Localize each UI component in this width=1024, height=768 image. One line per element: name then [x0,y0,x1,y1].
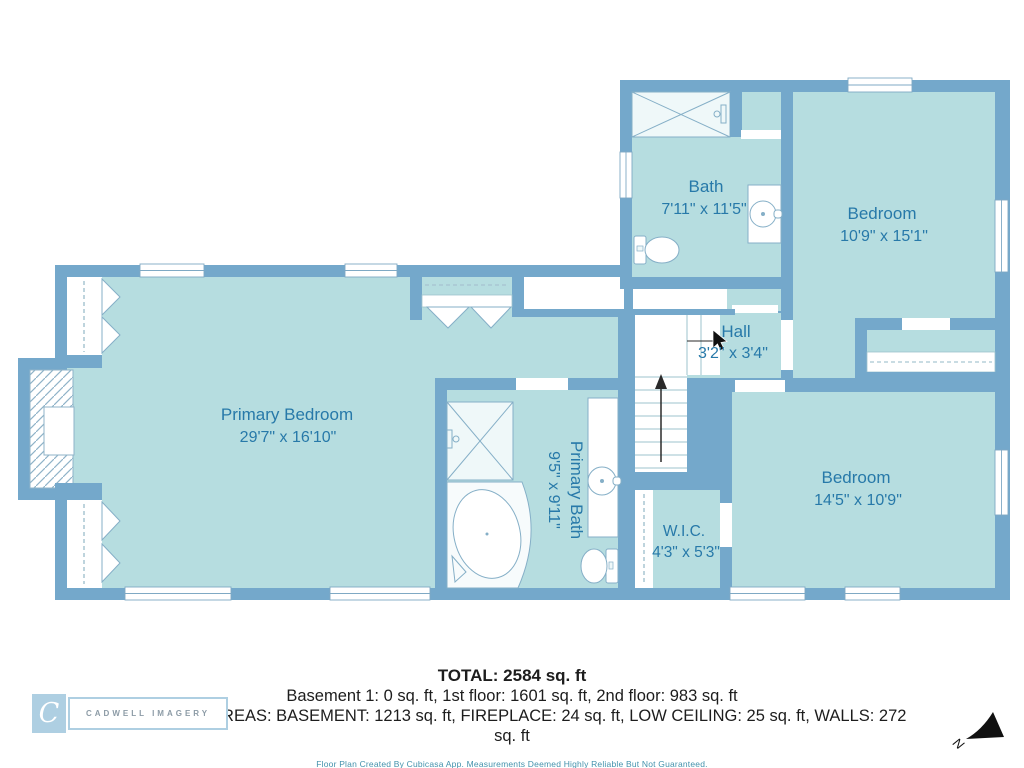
wic-label: W.I.C. [663,523,705,540]
primary-bedroom-dims: 29'7" x 16'10" [240,429,337,446]
total-area-text: TOTAL: 2584 sq. ft [0,666,1024,686]
bedroom-top-dims: 10'9" x 15'1" [840,228,928,245]
toilet [634,236,679,264]
room-bedroom-bottom [732,392,995,588]
bath-dims: 7'11" x 11'5" [661,201,746,218]
floor-plan: Primary Bedroom 29'7" x 16'10" Primary B… [0,0,1024,660]
bedroom-bottom-dims: 14'5" x 10'9" [814,492,902,509]
toilet [581,549,618,583]
bedroom-top-label: Bedroom [848,204,917,223]
bedroom-bottom-label: Bedroom [822,468,891,487]
room-primary-bath [435,378,632,588]
hall-closet [620,277,792,315]
north-label: N [950,735,967,750]
north-arrow-icon [966,712,1004,739]
logo-wordmark-box: CADWELL IMAGERY [68,697,228,730]
logo-name: CADWELL IMAGERY [86,709,210,718]
floor-plan-page: Primary Bedroom 29'7" x 16'10" Primary B… [0,0,1024,768]
shower [447,402,513,480]
sink-vanity [588,398,621,537]
door-opening [735,380,785,392]
primary-bath-dims: 9'5" x 9'11" [545,451,562,529]
door-opening [902,318,950,330]
door-opening [781,320,793,370]
sink-vanity [748,185,782,243]
door-opening [516,378,568,390]
shower [632,92,730,137]
door-opening [732,305,778,313]
excluded-areas-text: EXCLUDED AREAS: BASEMENT: 1213 sq. ft, F… [117,706,907,746]
bathtub [444,482,531,588]
logo-initial: C [39,700,60,727]
disclaimer-text: Floor Plan Created By Cubicasa App. Meas… [0,759,1024,768]
stair-void [512,277,632,317]
logo-monogram-icon: C [32,694,66,733]
hall-dims: 3'2" x 3'4" [698,345,768,362]
cadwell-imagery-logo: C CADWELL IMAGERY [32,694,228,733]
north-arrow: N [930,688,1014,750]
primary-bath-label: Primary Bath [567,441,586,539]
wic-dims: 4'3" x 5'3" [652,544,720,561]
bath-label: Bath [689,177,724,196]
door-opening [741,130,781,139]
door-opening [720,503,732,547]
hall-label: Hall [721,322,750,341]
fireplace [30,370,74,488]
primary-bedroom-label: Primary Bedroom [221,405,353,424]
